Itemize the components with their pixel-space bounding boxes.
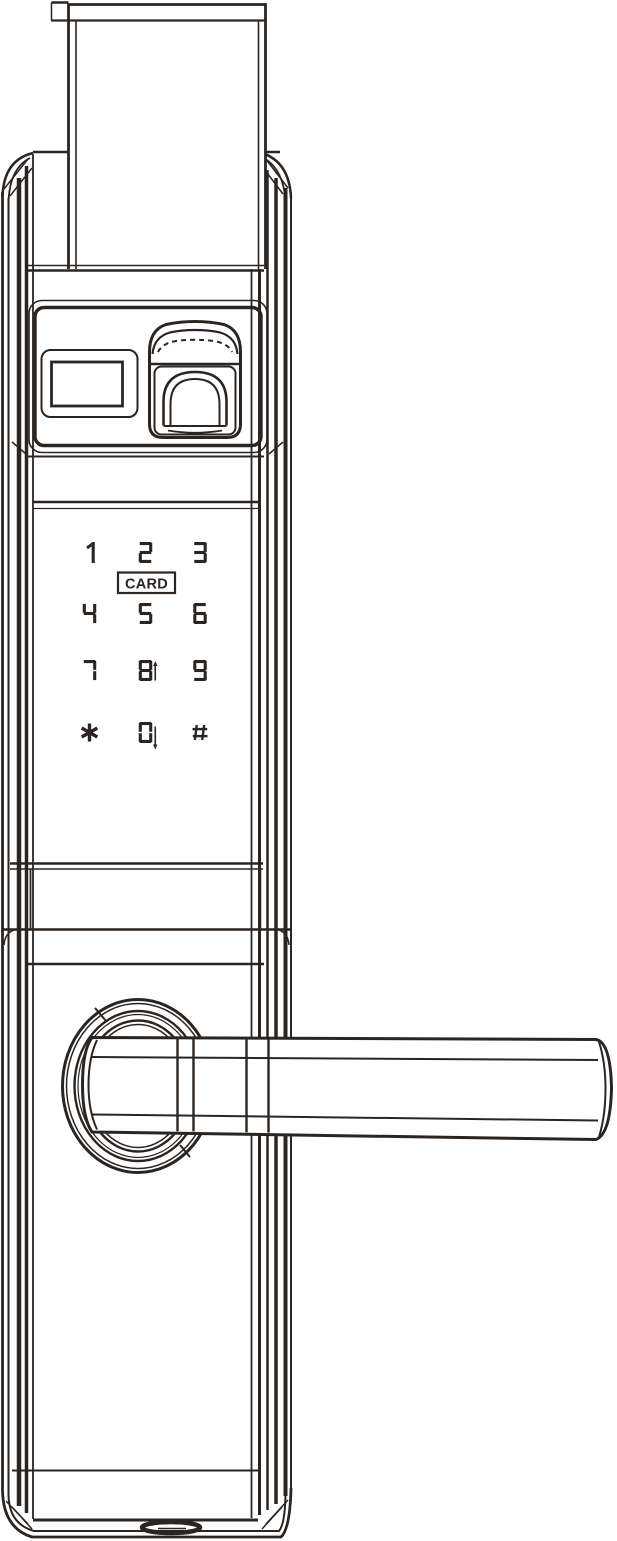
key-5[interactable]	[139, 603, 153, 624]
handle-lever[interactable]	[83, 1038, 612, 1140]
door-lock-drawing: CARD	[0, 0, 617, 1541]
key-9[interactable]	[193, 660, 207, 681]
lock-body-outline	[3, 152, 292, 1537]
key-3[interactable]	[194, 542, 207, 563]
key-6[interactable]	[193, 603, 207, 624]
key-star[interactable]	[82, 724, 98, 742]
card-key[interactable]: CARD	[118, 573, 175, 594]
key-4[interactable]	[83, 604, 97, 623]
lock-drawing-svg: CARD	[0, 0, 617, 1541]
key-8[interactable]	[139, 660, 158, 681]
usb-port	[142, 1522, 200, 1533]
key-7[interactable]	[84, 660, 97, 680]
top-cover	[51, 3, 266, 270]
fingerprint-sensor[interactable]	[150, 322, 241, 438]
key-hash[interactable]	[193, 725, 208, 740]
card-label: CARD	[125, 577, 168, 593]
key-0[interactable]	[139, 722, 158, 750]
door-handle	[63, 1000, 612, 1173]
sensor-panel	[29, 301, 267, 453]
keypad: CARD	[82, 542, 208, 750]
key-1[interactable]	[86, 542, 95, 563]
key-2[interactable]	[139, 542, 153, 563]
display-window	[42, 350, 138, 417]
